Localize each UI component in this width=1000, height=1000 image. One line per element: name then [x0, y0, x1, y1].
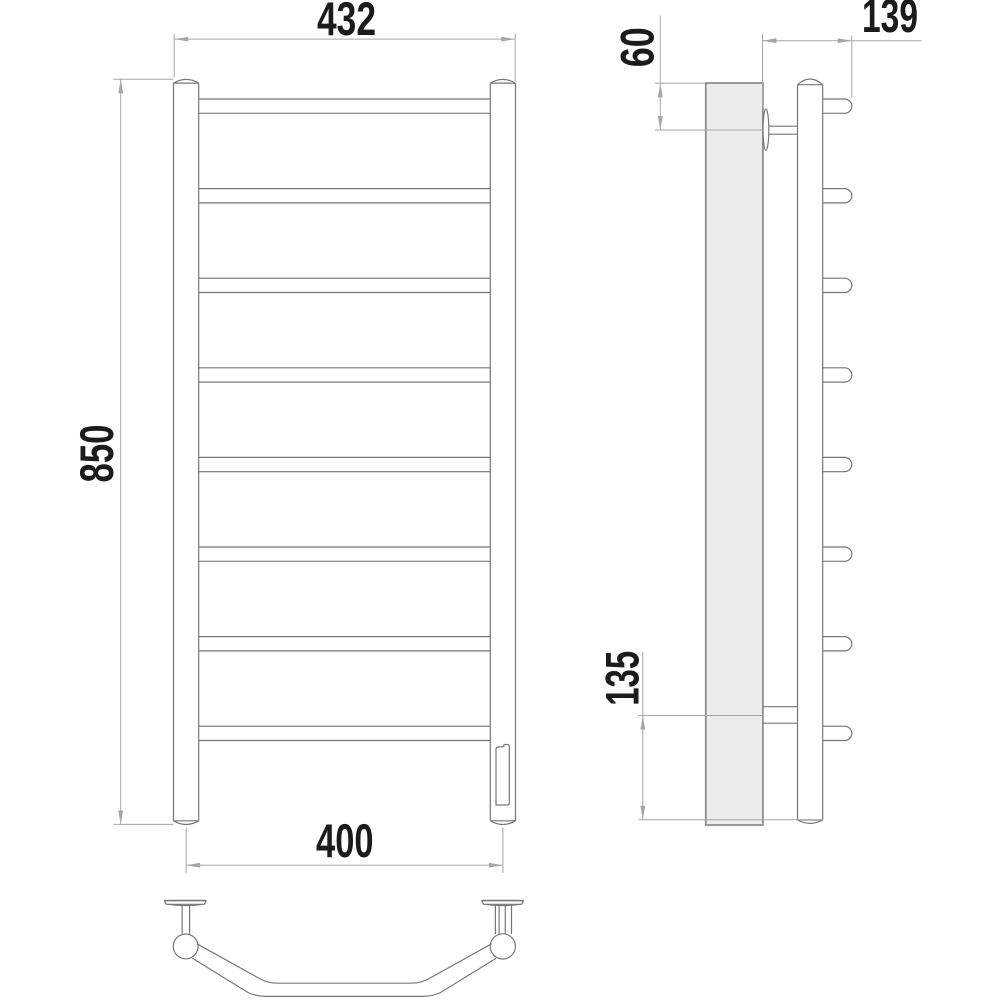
svg-text:135: 135 [596, 651, 649, 706]
svg-text:139: 139 [862, 0, 918, 42]
svg-text:400: 400 [316, 814, 374, 867]
svg-text:432: 432 [317, 0, 376, 45]
svg-text:850: 850 [70, 425, 123, 483]
svg-text:60: 60 [610, 27, 663, 67]
